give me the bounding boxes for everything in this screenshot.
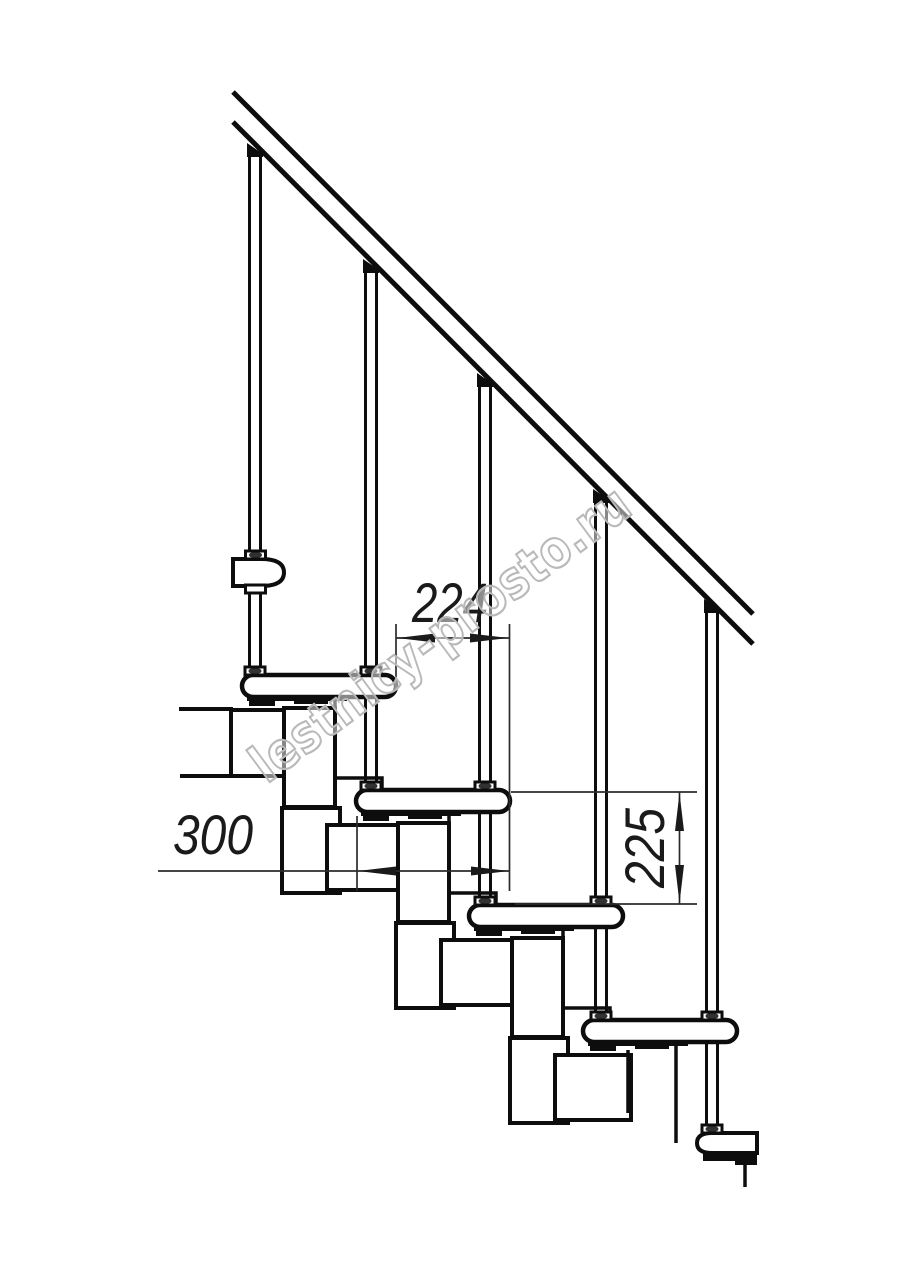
tread: [356, 790, 510, 812]
collar-ring: [479, 898, 492, 904]
bracket: [474, 925, 574, 936]
handrail-top-line: [233, 92, 753, 614]
module-box: [441, 940, 517, 1005]
tread-bottom-partial: [697, 1133, 757, 1153]
collar-ring: [365, 783, 378, 789]
staircase-side-view-drawing: 224 300 225 lestnicy-prosto.ru: [0, 0, 914, 1280]
collar-ring: [249, 668, 262, 674]
collar-ring: [249, 552, 262, 558]
collar-ring: [706, 1126, 719, 1132]
tread-end-view: [233, 559, 284, 586]
baluster-4: [596, 503, 607, 1015]
bracket: [588, 1040, 688, 1051]
module-box: [555, 1055, 631, 1120]
dimension-225: 225: [511, 792, 697, 904]
watermark-text: lestnicy-prosto.ru: [239, 474, 643, 795]
baluster-3: [480, 387, 491, 900]
module-box: [327, 825, 403, 890]
bracket-bottom: [703, 1152, 757, 1187]
module-box: [398, 823, 449, 922]
tread: [469, 905, 623, 927]
arrowhead-down: [675, 865, 684, 903]
dimension-value-300: 300: [173, 803, 253, 866]
baluster-5: [707, 613, 718, 1128]
tread: [583, 1020, 737, 1042]
module-connector: [563, 927, 610, 1020]
module-connector: [449, 812, 496, 905]
technical-drawing-page: 224 300 225 lestnicy-prosto.ru: [0, 0, 914, 1280]
collar: [246, 585, 266, 593]
collar-ring: [595, 1013, 608, 1019]
module-box: [512, 938, 563, 1037]
arrowhead-up: [675, 793, 684, 831]
bracket: [361, 810, 461, 821]
dimension-value-225: 225: [613, 807, 676, 889]
collar-ring: [479, 783, 492, 789]
collar-ring: [706, 1013, 719, 1019]
